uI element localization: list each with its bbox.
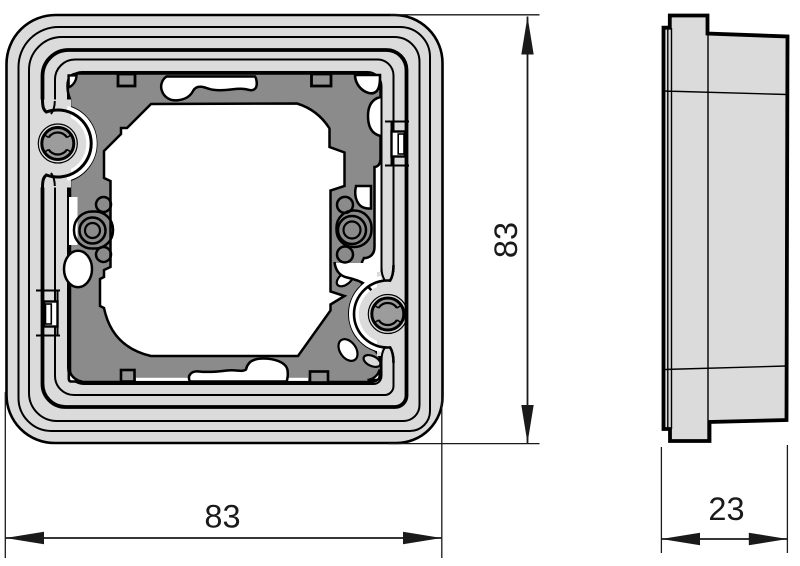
svg-text:83: 83 <box>204 499 240 535</box>
svg-text:83: 83 <box>488 222 524 258</box>
svg-text:23: 23 <box>708 491 744 527</box>
